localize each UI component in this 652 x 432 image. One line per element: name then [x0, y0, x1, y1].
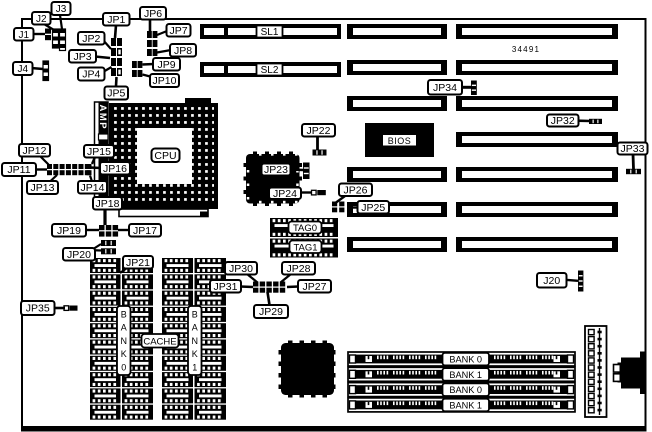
- svg-text:JP16: JP16: [103, 163, 127, 175]
- svg-text:CACHE: CACHE: [143, 337, 176, 348]
- svg-text:JP1: JP1: [107, 14, 125, 26]
- svg-text:K: K: [121, 349, 127, 359]
- svg-text:JP10: JP10: [153, 75, 177, 87]
- svg-text:JP13: JP13: [31, 182, 55, 194]
- svg-text:AMP: AMP: [97, 105, 108, 131]
- svg-text:J3: J3: [56, 4, 67, 15]
- svg-text:J2: J2: [36, 14, 47, 25]
- svg-text:JP35: JP35: [26, 303, 50, 315]
- svg-text:JP19: JP19: [57, 225, 81, 237]
- svg-text:BIOS: BIOS: [388, 136, 412, 146]
- svg-text:JP3: JP3: [73, 51, 91, 63]
- svg-text:JP31: JP31: [214, 281, 238, 293]
- svg-text:34491: 34491: [512, 45, 540, 54]
- svg-text:JP2: JP2: [82, 33, 100, 45]
- svg-text:JP27: JP27: [303, 281, 327, 293]
- svg-text:JP8: JP8: [174, 45, 192, 57]
- svg-text:JP21: JP21: [126, 257, 150, 269]
- svg-text:BANK 1: BANK 1: [449, 370, 482, 380]
- svg-text:JP18: JP18: [96, 198, 120, 210]
- svg-text:J4: J4: [17, 64, 28, 75]
- svg-text:JP30: JP30: [229, 263, 253, 275]
- svg-text:JP14: JP14: [81, 182, 105, 194]
- svg-text:CPU: CPU: [154, 150, 176, 162]
- svg-text:JP22: JP22: [307, 125, 331, 137]
- svg-text:JP32: JP32: [551, 115, 575, 127]
- svg-text:JP34: JP34: [433, 82, 457, 94]
- svg-text:1: 1: [192, 362, 197, 372]
- svg-text:JP23: JP23: [264, 164, 288, 176]
- svg-text:0: 0: [121, 362, 126, 372]
- svg-text:A: A: [192, 323, 198, 333]
- svg-text:K: K: [192, 349, 198, 359]
- svg-text:TAG1: TAG1: [293, 243, 317, 254]
- svg-text:BANK 0: BANK 0: [449, 385, 482, 395]
- svg-text:JP7: JP7: [169, 25, 187, 37]
- svg-text:JP17: JP17: [133, 225, 157, 237]
- svg-text:N: N: [192, 336, 199, 346]
- svg-text:B: B: [121, 310, 127, 320]
- svg-text:JP26: JP26: [344, 184, 368, 196]
- svg-text:JP12: JP12: [23, 145, 47, 157]
- svg-text:JP15: JP15: [87, 146, 111, 158]
- svg-text:N: N: [121, 336, 128, 346]
- svg-text:A: A: [121, 323, 127, 333]
- svg-text:JP20: JP20: [67, 249, 91, 261]
- svg-text:B: B: [192, 310, 198, 320]
- svg-text:SL2: SL2: [261, 65, 279, 76]
- svg-text:JP6: JP6: [144, 8, 162, 20]
- svg-text:JP28: JP28: [287, 263, 311, 275]
- svg-text:JP9: JP9: [157, 59, 175, 71]
- svg-text:JP25: JP25: [361, 202, 385, 214]
- svg-text:JP29: JP29: [259, 306, 283, 318]
- svg-text:JP11: JP11: [7, 164, 30, 176]
- svg-text:TAG0: TAG0: [293, 223, 317, 234]
- svg-text:SL1: SL1: [261, 27, 279, 38]
- svg-text:JP4: JP4: [82, 69, 100, 81]
- svg-text:JP33: JP33: [621, 143, 645, 155]
- svg-text:BANK 0: BANK 0: [449, 355, 482, 365]
- svg-text:J20: J20: [543, 275, 560, 287]
- svg-text:JP5: JP5: [107, 88, 125, 100]
- svg-text:J1: J1: [18, 30, 29, 41]
- svg-text:JP24: JP24: [273, 188, 297, 200]
- svg-text:BANK 1: BANK 1: [449, 401, 482, 411]
